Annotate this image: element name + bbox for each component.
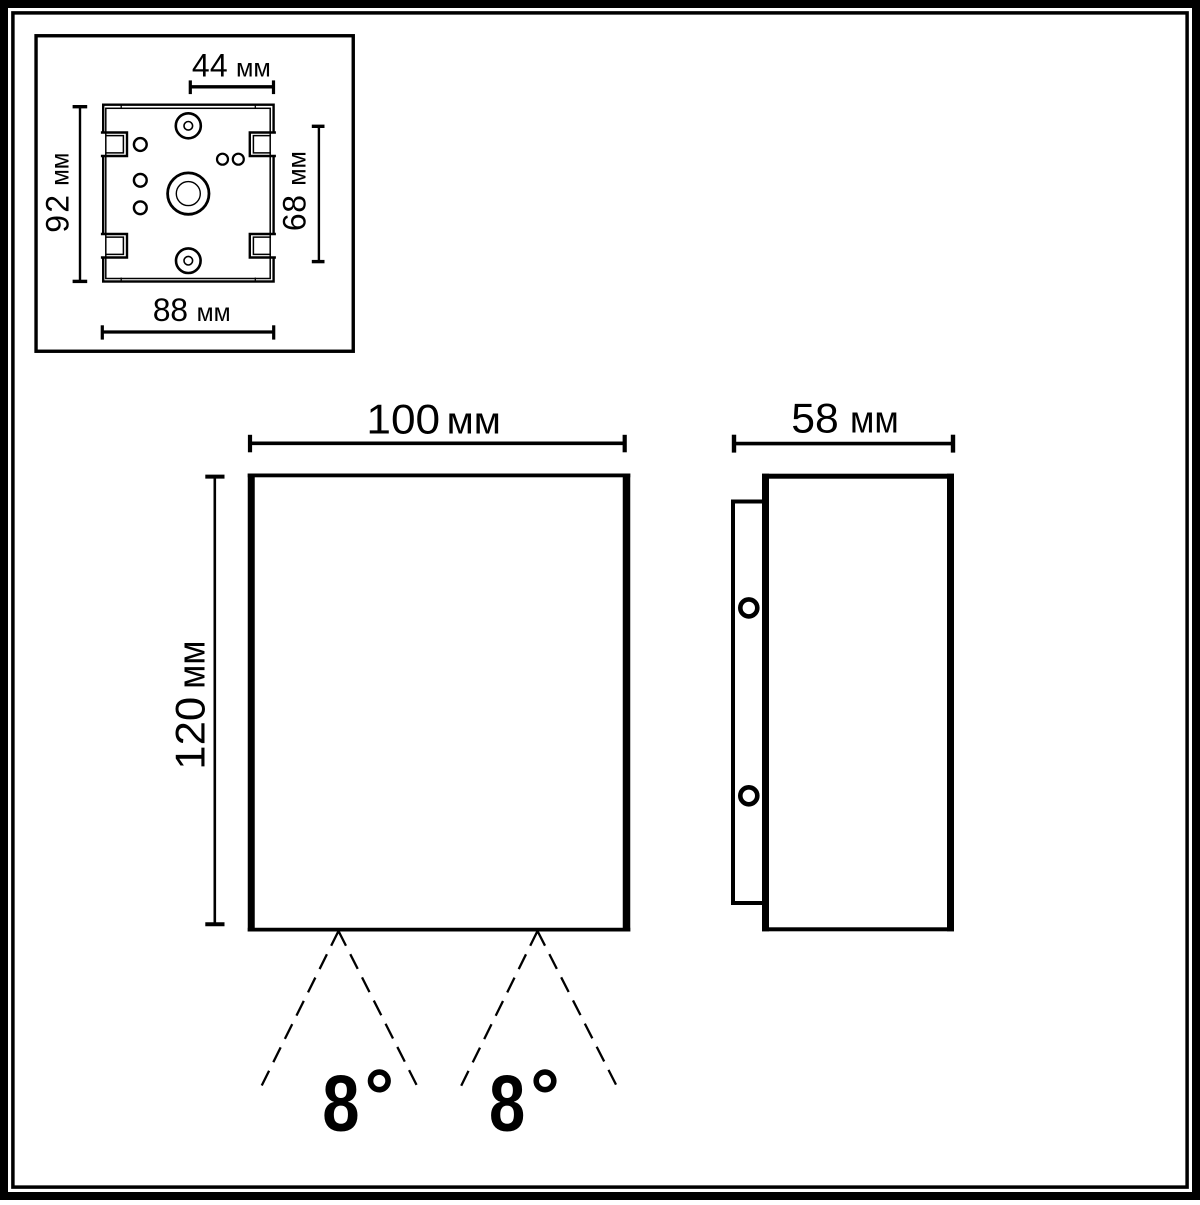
svg-text:68: 68 <box>276 195 312 231</box>
svg-text:8: 8 <box>322 1059 359 1148</box>
svg-text:мм: мм <box>44 153 74 186</box>
svg-text:мм: мм <box>172 641 214 689</box>
svg-text:88: 88 <box>153 292 188 328</box>
svg-text:58: 58 <box>791 395 839 442</box>
svg-text:44: 44 <box>192 48 228 84</box>
svg-text:120: 120 <box>167 697 214 770</box>
svg-text:мм: мм <box>236 53 271 83</box>
svg-text:8: 8 <box>489 1059 525 1148</box>
svg-text:мм: мм <box>850 400 899 442</box>
svg-text:мм: мм <box>281 151 311 186</box>
svg-text:100: 100 <box>366 395 440 442</box>
svg-text:мм: мм <box>197 297 231 327</box>
svg-text:мм: мм <box>447 400 501 442</box>
